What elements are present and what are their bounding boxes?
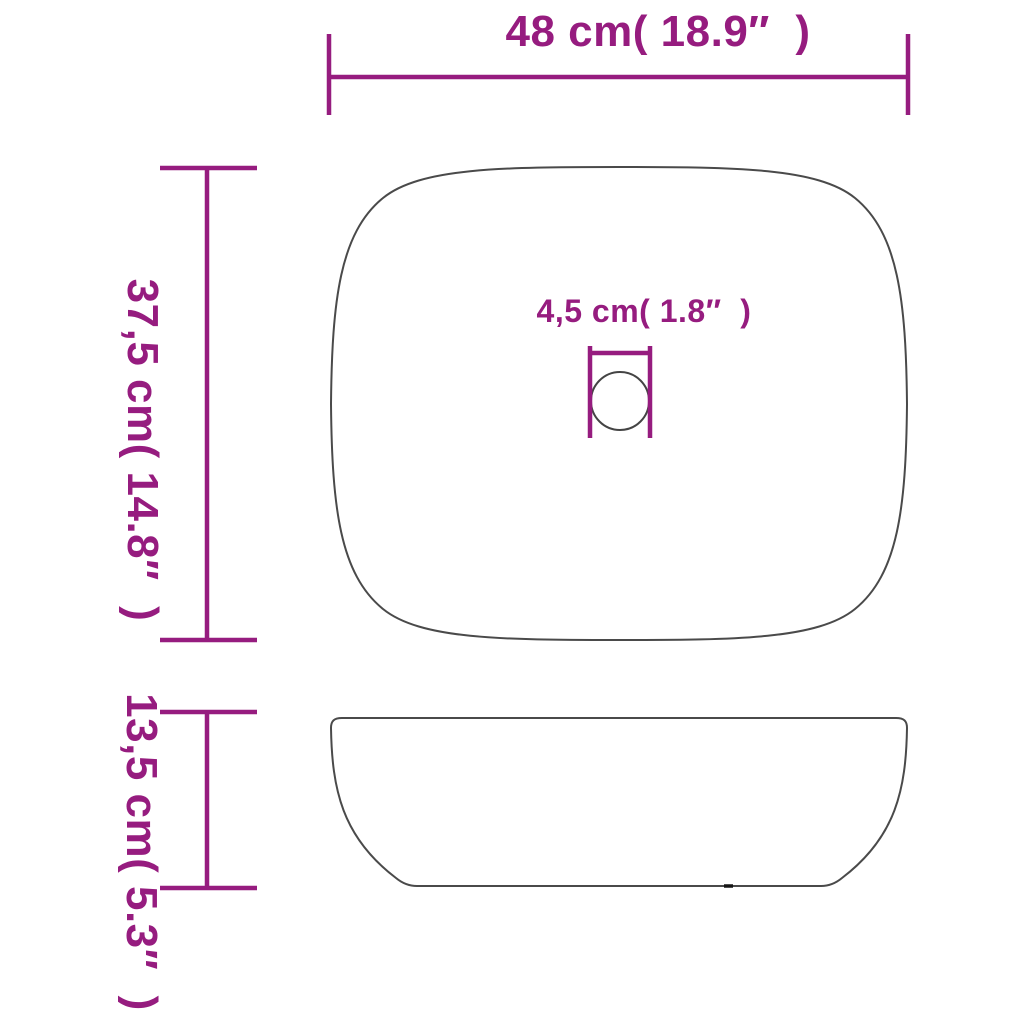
- drain-hole-circle: [591, 372, 649, 430]
- drain-dimension: [590, 346, 650, 438]
- side-view-outline: [331, 718, 907, 886]
- drain-dimension-label: 4,5 cm( 1.8″ ): [494, 292, 794, 330]
- top-view-outline: [331, 167, 907, 640]
- width-dimension-label: 48 cm( 18.9″ ): [488, 6, 828, 58]
- depth-dimension: [160, 168, 257, 640]
- dimension-diagram: 48 cm( 18.9″ ) 37,5 cm( 14.8″ ) 13,5 cm(…: [0, 0, 1024, 1024]
- product-outlines: [331, 167, 907, 886]
- height-dimension-label: 13,5 cm( 5.3″ ): [115, 687, 167, 1017]
- depth-dimension-label: 37,5 cm( 14.8″ ): [116, 250, 168, 650]
- height-dimension: [160, 712, 257, 888]
- dimension-lines: [160, 34, 908, 888]
